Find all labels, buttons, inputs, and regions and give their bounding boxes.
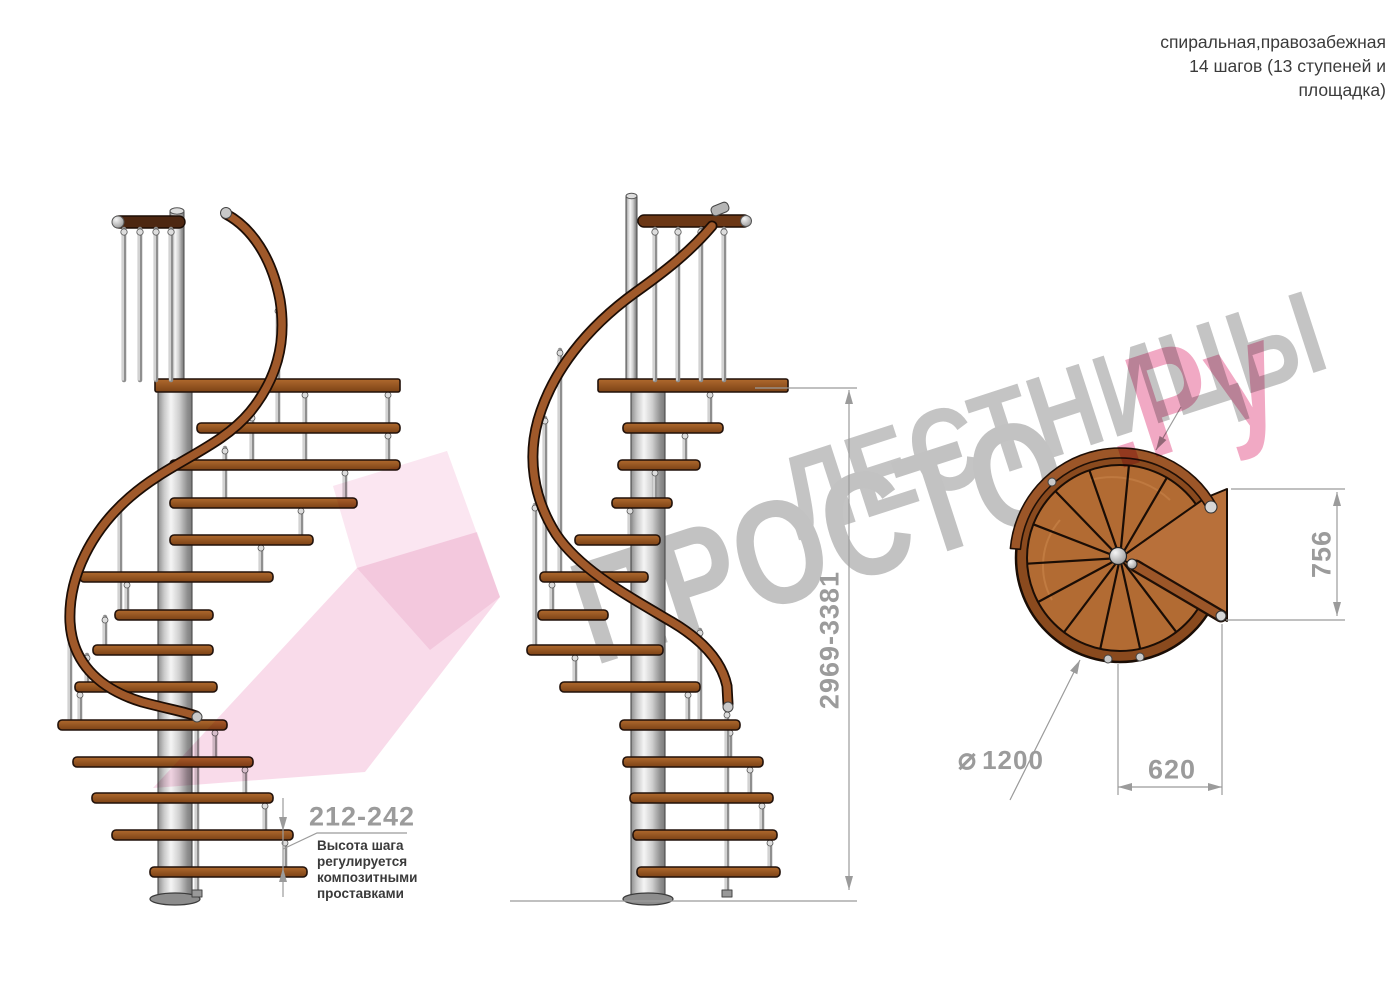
technical-drawing-page: ЛЕСТНИЦЫ ПРОСТО bbox=[0, 0, 1400, 1000]
step-height-note: Высота шага регулируется композитными пр… bbox=[317, 838, 437, 902]
dim-step-height-label: 212-242 bbox=[309, 802, 415, 833]
drawing-title-line1: спиральная,правозабежная bbox=[1160, 30, 1386, 54]
dim-step-length-label: 620 bbox=[1148, 755, 1196, 786]
dim-total-height-label: 2969-3381 bbox=[815, 571, 846, 709]
dim-diameter-label: ⌀ 1200 bbox=[958, 742, 1044, 777]
dim-diameter-value: 1200 bbox=[982, 745, 1044, 776]
dim-platform-width-label: 756 bbox=[1307, 530, 1338, 578]
drawing-title-line2: 14 шагов (13 ступеней и bbox=[1160, 54, 1386, 78]
drawing-title-line3: площадка) bbox=[1160, 78, 1386, 102]
logo-watermark-layer bbox=[0, 0, 1400, 1000]
diameter-icon: ⌀ bbox=[958, 742, 977, 777]
drawing-title: спиральная,правозабежная 14 шагов (13 ст… bbox=[1160, 30, 1386, 102]
